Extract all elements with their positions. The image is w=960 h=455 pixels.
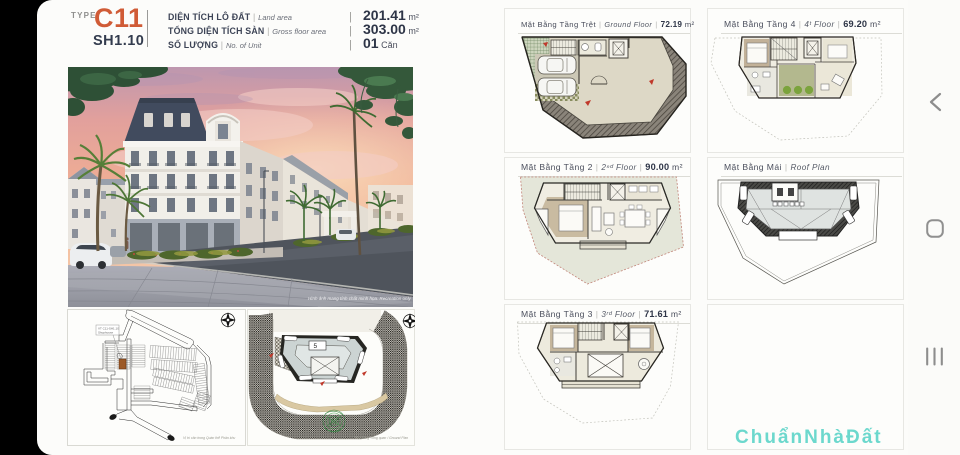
svg-text:5: 5: [314, 343, 318, 350]
svg-text:Shophouse: Shophouse: [98, 331, 114, 335]
svg-text:Hình ảnh mang tính chất minh h: Hình ảnh mang tính chất minh họa. Recrea…: [308, 295, 412, 301]
svg-text:Vị trí căn trong Quần thể Phân: Vị trí căn trong Quần thể Phân khu: [183, 436, 235, 440]
svg-text:Mặt bằng Tổng quan / Ground Pl: Mặt bằng Tổng quan / Ground Plan: [355, 435, 408, 440]
